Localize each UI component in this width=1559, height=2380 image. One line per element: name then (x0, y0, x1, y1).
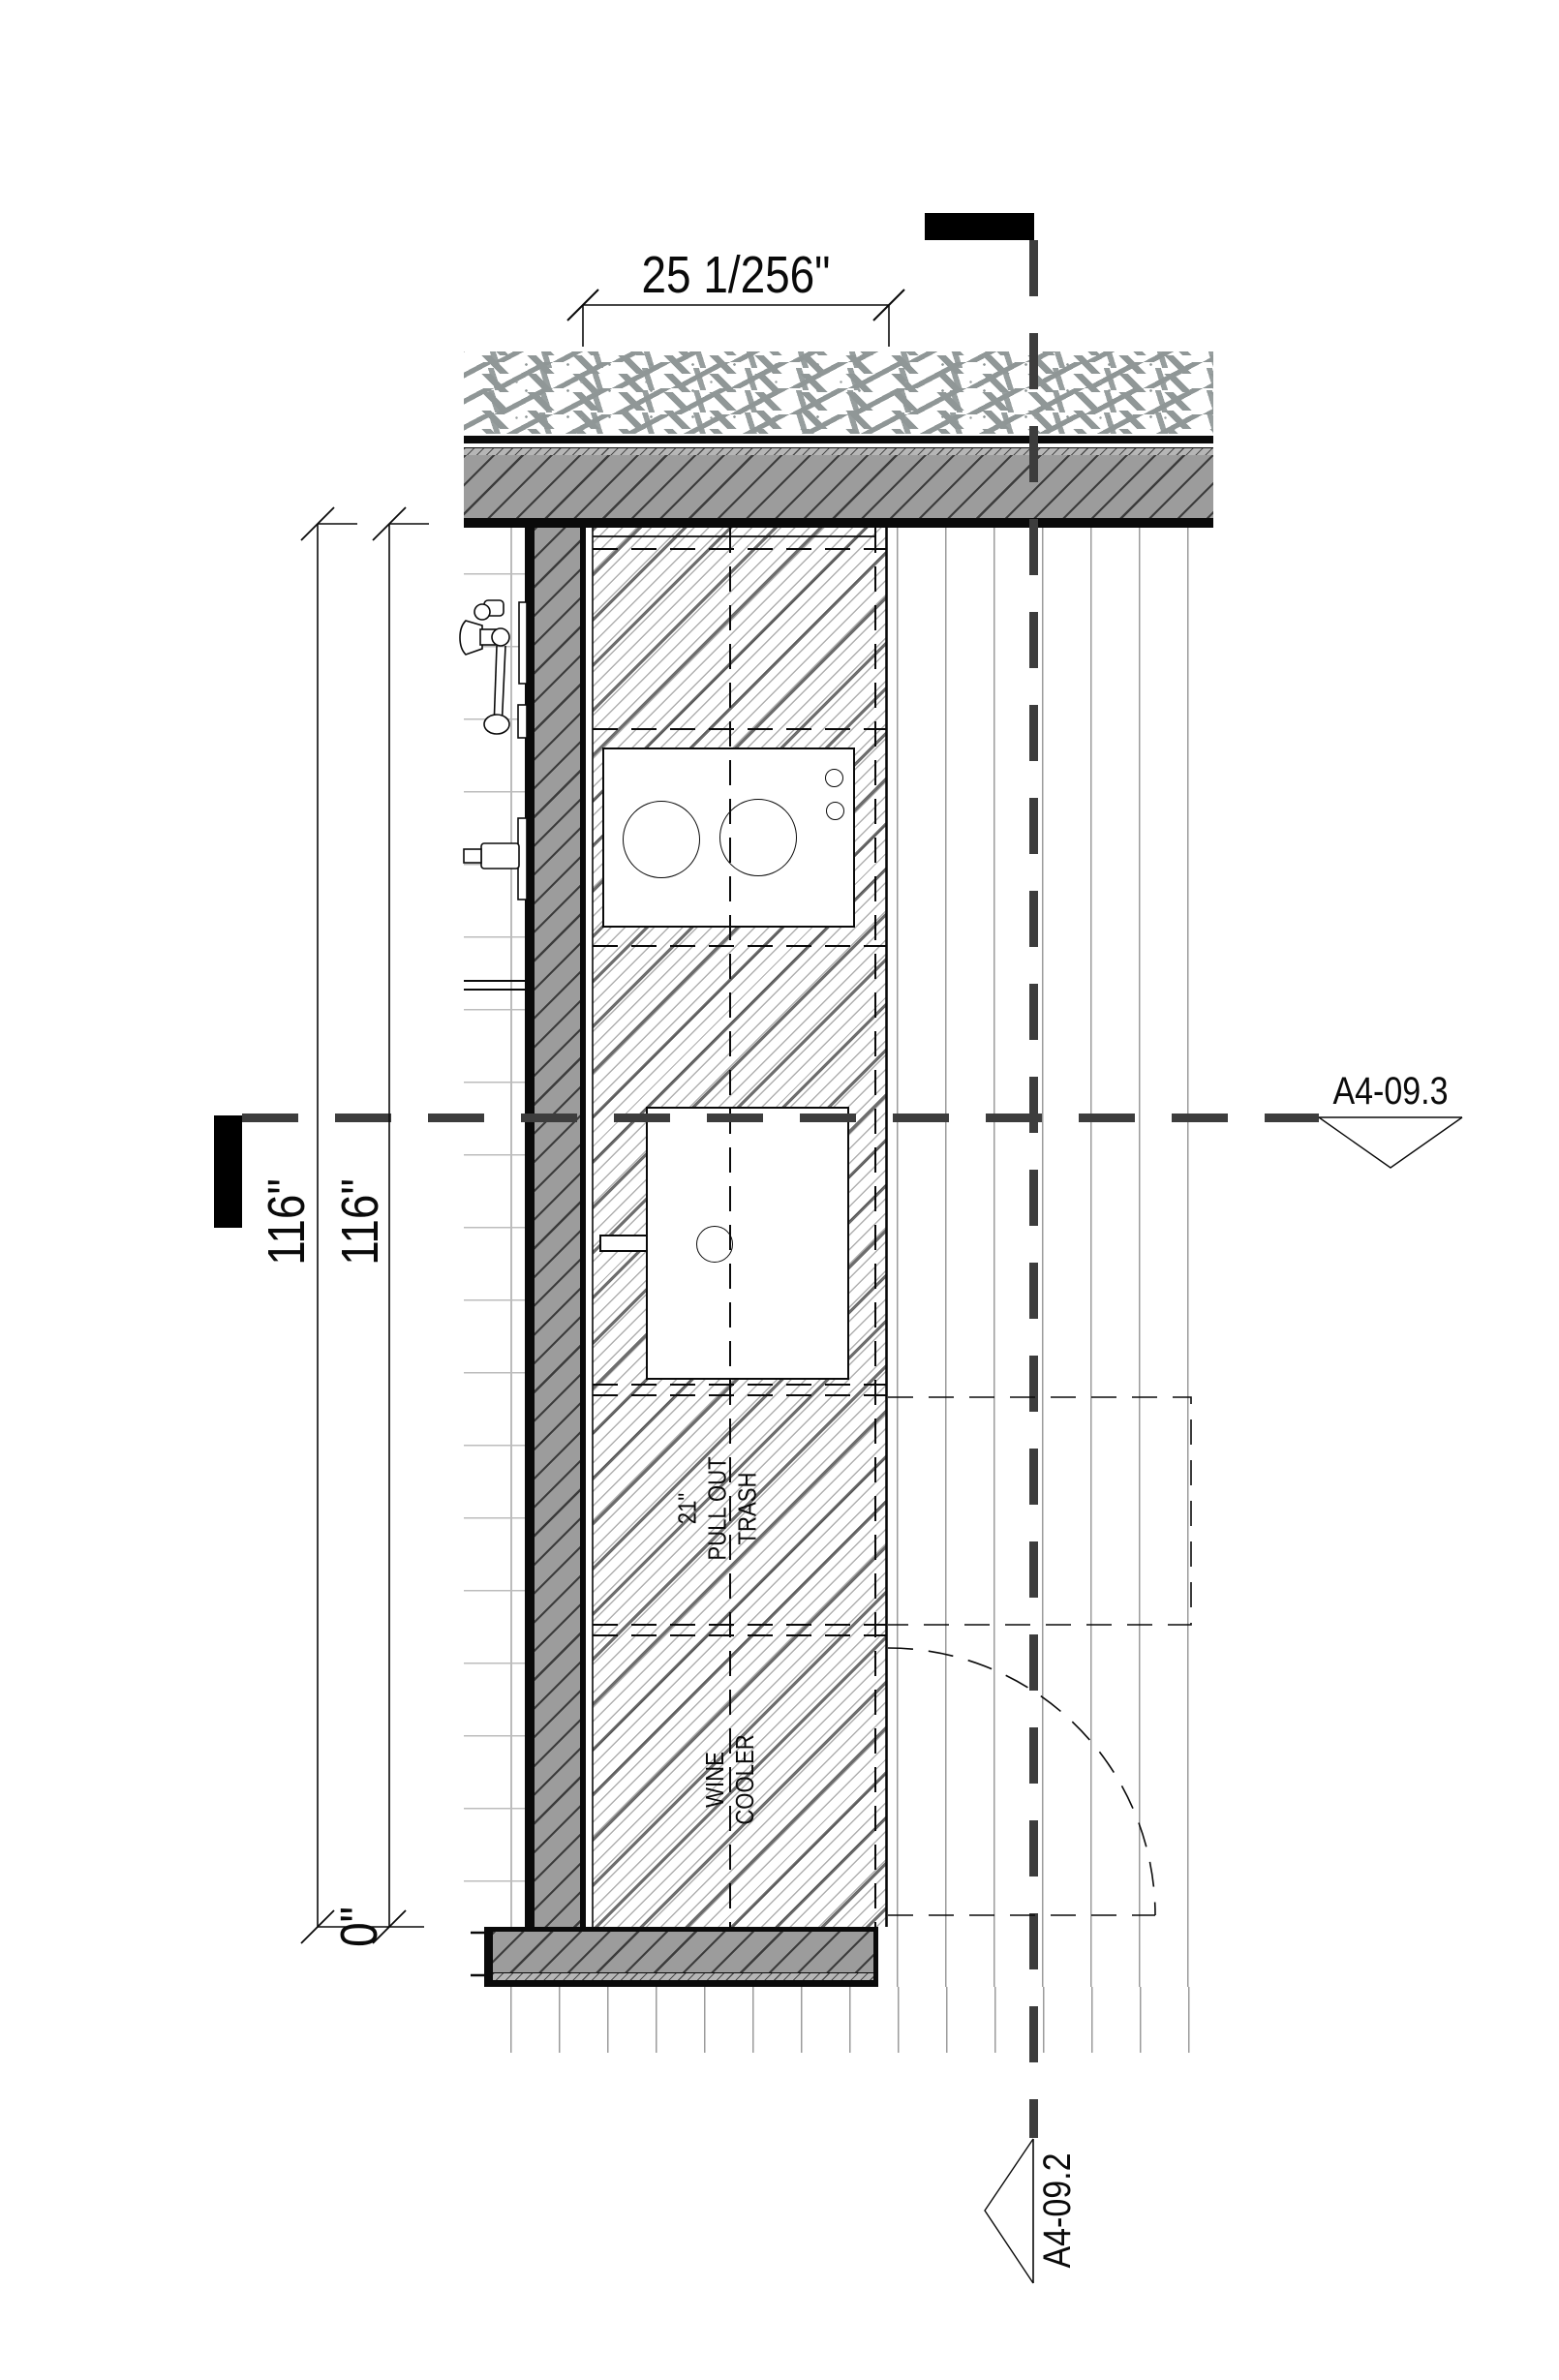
trash-line-1: PULL OUT (703, 1456, 733, 1560)
pull-out-trash-label: 21" PULL OUT TRASH (673, 1456, 763, 1560)
valve-handle (481, 843, 519, 869)
faucet-horn (460, 621, 482, 655)
faucet-top-knob (474, 604, 490, 620)
elevation-116-outer-label: 116" (260, 1178, 313, 1265)
trash-width-line: 21" (673, 1456, 703, 1560)
section-marker-right-label: A4-09.3 (1332, 1072, 1448, 1111)
wall-faucet-fixture (460, 600, 527, 738)
linework-layer (0, 0, 1559, 2380)
hidden-appliance-dashed-box (888, 1397, 1191, 1625)
elevation-116-inner-label: 116" (334, 1178, 386, 1265)
section-marker-bottom-triangle-icon (985, 2139, 1033, 2283)
faucet-lower-body (484, 715, 509, 734)
top-width-dimension-label: 25 1/256" (642, 249, 831, 301)
faucet-lower-bracket (518, 705, 527, 738)
door-swing-arc (888, 1648, 1155, 1915)
trash-line-2: TRASH (733, 1456, 763, 1560)
wine-line-1: WINE (700, 1734, 730, 1824)
faucet-wall-plate (519, 602, 527, 684)
wine-line-2: COOLER (730, 1734, 760, 1824)
wine-cooler-label: WINE COOLER (700, 1734, 760, 1824)
wall-valve-fixture (464, 818, 527, 900)
elevation-zero-label: 0" (333, 1907, 385, 1947)
valve-stub (464, 849, 481, 863)
faucet-valve-knob (492, 628, 509, 646)
drawing-sheet: 25 1/256" 116" 116" 0" A4-09.3 A4-09.2 2… (0, 0, 1559, 2380)
section-marker-right-triangle-icon (1319, 1117, 1462, 1168)
section-marker-bottom-label: A4-09.2 (1038, 2152, 1077, 2268)
